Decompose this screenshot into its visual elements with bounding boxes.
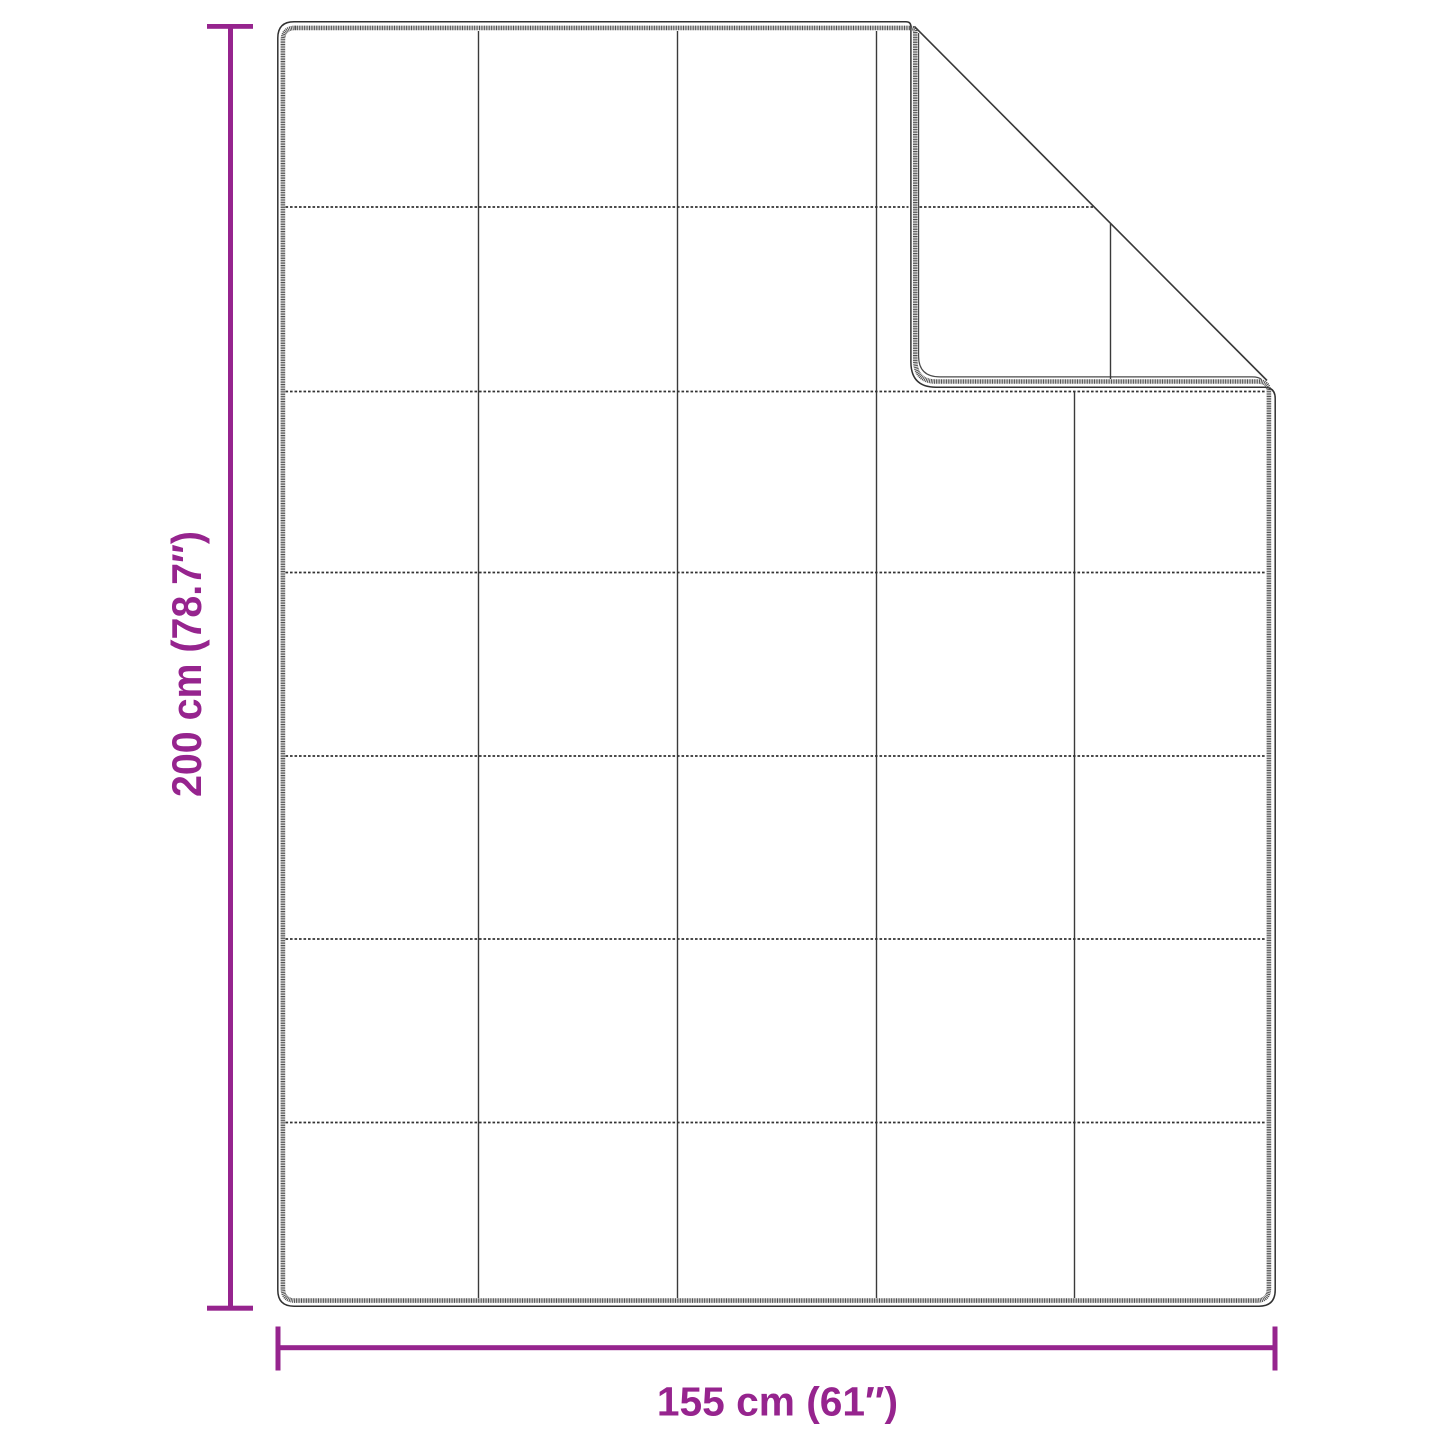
- svg-text:200 cm (78.7″): 200 cm (78.7″): [163, 531, 210, 797]
- svg-text:155 cm (61″): 155 cm (61″): [657, 1379, 898, 1425]
